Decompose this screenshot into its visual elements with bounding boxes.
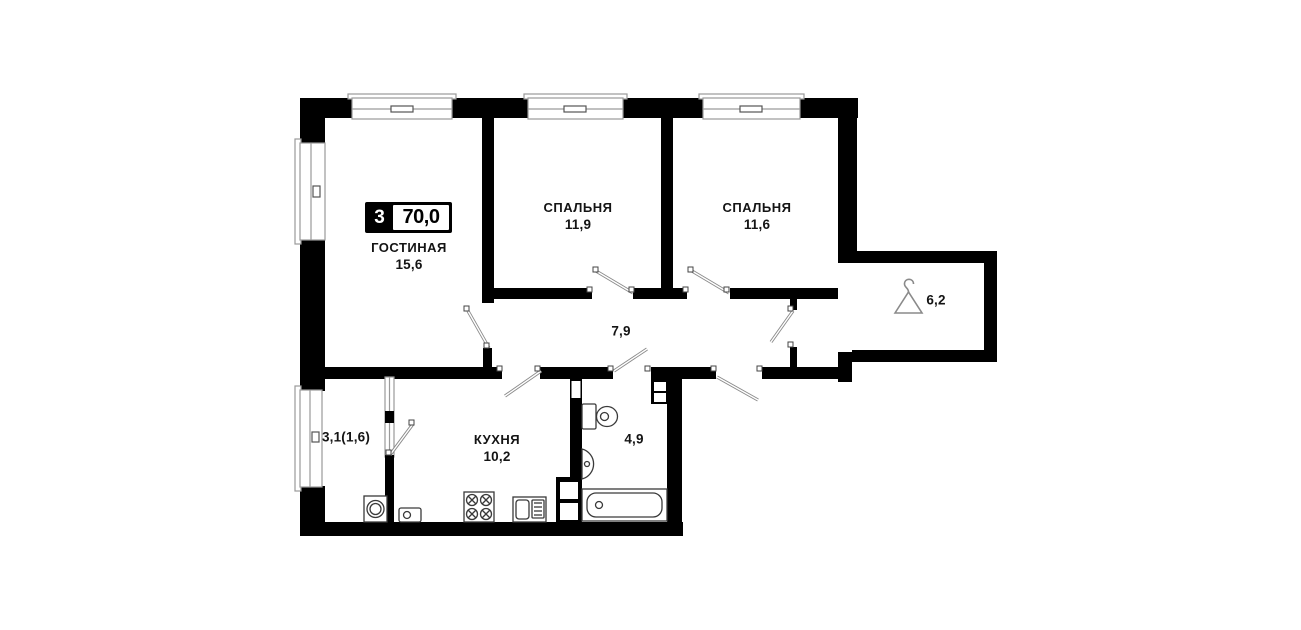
floorplan-canvas: 3 70,0 ГОСТИНАЯ 15,6 СПАЛЬНЯ 11,9 СПАЛЬН… [0, 0, 1301, 630]
washbasin [582, 449, 594, 479]
room-label-bedroom1: СПАЛЬНЯ 11,9 [544, 199, 613, 233]
room-area: 10,2 [474, 448, 520, 465]
room-area: 11,9 [544, 216, 613, 233]
room-label-bedroom2: СПАЛЬНЯ 11,6 [723, 199, 792, 233]
kitchen-sink [513, 497, 546, 522]
room-label-bathroom: 4,9 [624, 431, 643, 448]
room-name: КУХНЯ [474, 431, 520, 448]
door-leaf-bedroom2 [692, 271, 729, 293]
hanger-icon [895, 279, 922, 313]
room-name: СПАЛЬНЯ [723, 199, 792, 216]
stove [464, 492, 494, 522]
room-label-wardrobe: 6,2 [926, 292, 945, 309]
floorplan-drawing [0, 0, 1301, 630]
door-leaf-entrance [717, 377, 758, 400]
room-name: СПАЛЬНЯ [544, 199, 613, 216]
walls [300, 98, 997, 536]
room-label-living: ГОСТИНАЯ 15,6 [371, 239, 447, 273]
door-leaf-living [468, 311, 489, 348]
room-area: 3,1(1,6) [322, 429, 370, 446]
window-balcony-left [295, 386, 322, 491]
room-name: ГОСТИНАЯ [371, 239, 447, 256]
room-area: 4,9 [624, 431, 643, 448]
window-living-top [348, 94, 456, 119]
badge-rooms-count: 3 [368, 205, 391, 230]
badge-total-area: 70,0 [393, 205, 449, 230]
room-label-hallway: 7,9 [611, 323, 630, 340]
door-leaf-kitchen [505, 371, 541, 396]
room-area: 15,6 [371, 256, 447, 273]
door-leaf-bedroom1 [596, 271, 633, 293]
room-area: 7,9 [611, 323, 630, 340]
room-label-balcony: 3,1(1,6) [322, 429, 370, 446]
window-living-left [295, 139, 325, 244]
fixtures [364, 279, 922, 522]
window-bedroom2-top [699, 94, 804, 119]
apartment-badge: 3 70,0 [365, 202, 452, 233]
toilet [582, 404, 618, 429]
room-label-kitchen: КУХНЯ 10,2 [474, 431, 520, 465]
washing-machine [364, 496, 387, 522]
window-bedroom1-top [524, 94, 627, 119]
room-area: 11,6 [723, 216, 792, 233]
door-leaf-corridor [771, 311, 793, 342]
kitchen-appliance [399, 508, 421, 522]
door-leaf-bathroom [614, 349, 647, 371]
bathtub [582, 489, 667, 521]
room-area: 6,2 [926, 292, 945, 309]
